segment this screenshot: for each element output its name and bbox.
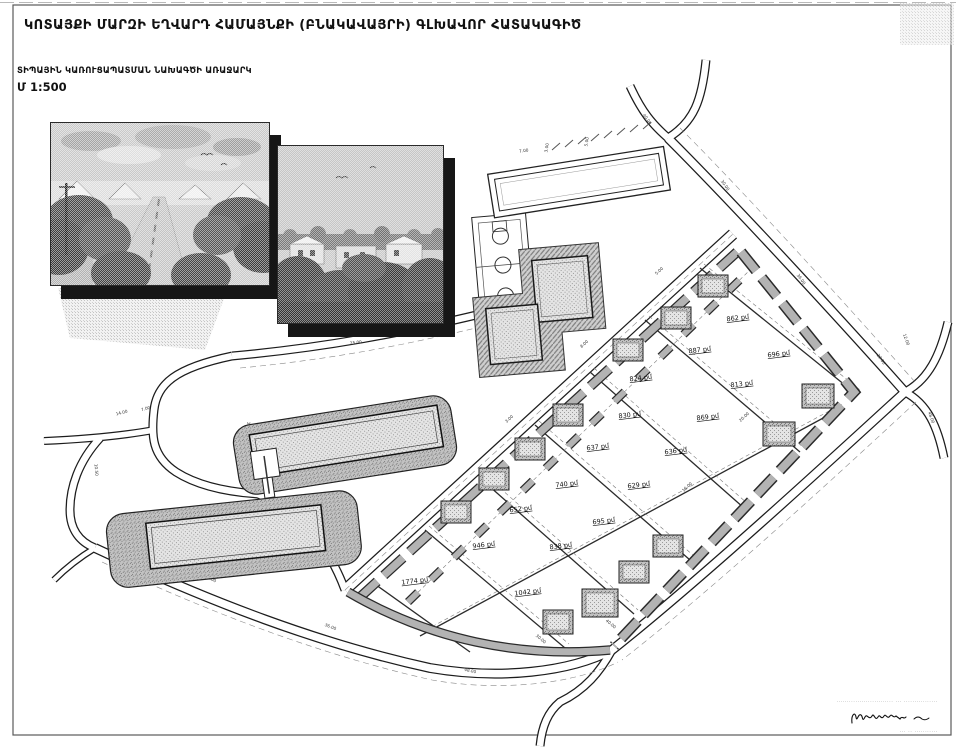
house-footprint-inner — [623, 565, 645, 579]
slope-marks — [552, 122, 651, 150]
aerial-rendering-image — [278, 146, 443, 323]
site-plan-drawing: 862 քմ887 քմ696 քմ824 քմ813 քմ830 քմ869 … — [0, 0, 956, 748]
parcel-area-label: 946 քմ — [472, 540, 496, 551]
drawing-sheet: 862 քմ887 քմ696 քմ824 քմ813 քմ830 քմ869 … — [0, 0, 956, 748]
parcel-area-label: 869 քմ — [696, 412, 720, 423]
photo-shadow-dither — [58, 288, 225, 350]
sheet-frame — [0, 3, 956, 736]
house-footprint-inner — [445, 505, 467, 519]
dimension-label: 40.00 — [605, 618, 618, 630]
photo-aerial-rendering — [277, 145, 444, 324]
school-complex — [466, 207, 609, 378]
house-footprint-inner — [702, 279, 724, 293]
title-block: ··························· ··· ········… — [837, 700, 938, 734]
dimension-label: 5.00 — [654, 266, 664, 276]
street-rendering-image — [51, 123, 269, 285]
dimension-label: 3.00 — [543, 142, 550, 152]
dimension-label: 20.00 — [738, 411, 750, 423]
signature-scribble — [848, 707, 938, 729]
parcel-area-label: 887 քմ — [688, 345, 712, 356]
dimension-label: 7.00 — [415, 329, 425, 335]
house-footprint-inner — [657, 539, 679, 553]
dimension-label: 30.00 — [535, 633, 548, 645]
dimension-label: 7.00 — [519, 147, 529, 153]
page-subtitle: ՏԻՊԱՅԻՆ ԿԱՌՈՒՑԱՊԱՏՄԱՆ ՆԱԽԱԳԾԻ ԱՌԱՋԱՐԿ — [17, 66, 437, 76]
parcel-area-label: 695 քմ — [592, 516, 616, 527]
house-footprint-inner — [617, 343, 639, 357]
parcel-area-label: 824 քմ — [629, 373, 653, 384]
dimension-label: 10.50 — [93, 464, 99, 477]
house-footprint-inner — [557, 408, 579, 422]
dimension-label: 3.00 — [504, 414, 514, 424]
house-footprint-inner — [806, 388, 830, 404]
dimension-label: 12.00 — [902, 333, 911, 346]
parcel-area-label: 696 քմ — [767, 349, 791, 360]
parcel-area-label: 637 քմ — [586, 442, 610, 453]
page-title: ԿՈՏԱՅՔԻ ՄԱՐԶԻ ԵՂՎԱՐԴ ՀԱՄԱՅՆՔԻ (ԲՆԱԿԱՎԱՅՐ… — [24, 18, 624, 33]
house-footprint-inner — [483, 472, 505, 486]
house-footprint-inner — [767, 426, 791, 442]
dimension-label: 25.00 — [350, 339, 363, 345]
parcel-area-label: 636 քմ — [664, 446, 688, 457]
house-footprint-inner — [547, 614, 569, 630]
long-building-top — [488, 147, 671, 218]
parcel-area-label: 740 քմ — [555, 479, 579, 490]
dimension-label: 14.00 — [115, 408, 128, 416]
scale-label: Մ 1:500 — [17, 80, 67, 94]
parcel-area-label: 629 քմ — [627, 480, 651, 491]
parcel-area-label: 830 քմ — [618, 410, 642, 421]
dimension-label: 36.00 — [324, 622, 337, 631]
long-building-lower — [105, 489, 363, 589]
photo-street-rendering — [50, 122, 270, 286]
parcel-area-label: 813 քմ — [730, 379, 754, 390]
house-footprint-inner — [586, 593, 614, 613]
dimension-label: 8.00 — [579, 339, 589, 349]
house-footprint-inner — [665, 311, 687, 325]
house-footprint-inner — [519, 442, 541, 456]
micro-print-line: ··························· ··· ········… — [837, 700, 938, 705]
parcel-area-label: 862 քմ — [726, 313, 750, 324]
parcel-area-label: 652 քմ — [509, 504, 533, 515]
parcel-area-label: 1042 քմ — [514, 586, 543, 597]
micro-print-name: ··· ·· ··········· — [837, 730, 938, 734]
